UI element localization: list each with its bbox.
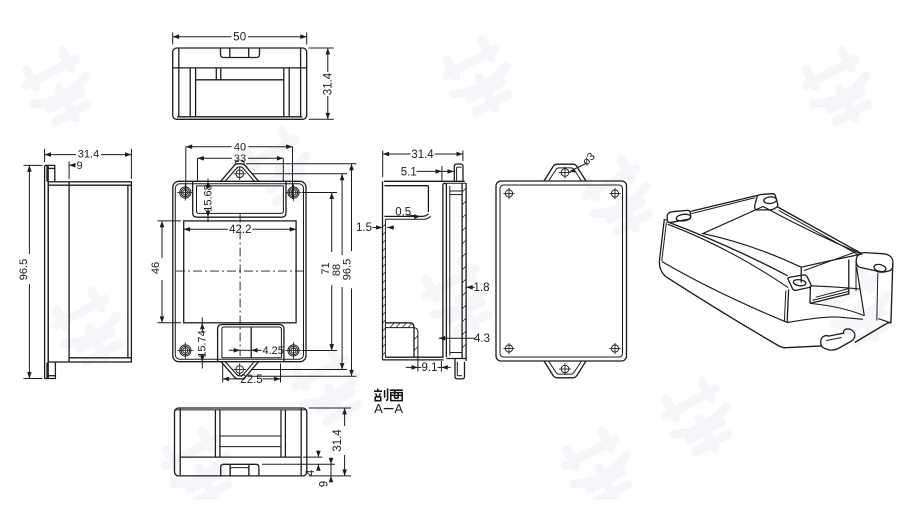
svg-text:15.68: 15.68 [202, 184, 214, 212]
svg-text:31.4: 31.4 [323, 72, 335, 95]
svg-text:42.2: 42.2 [229, 224, 251, 236]
svg-text:9: 9 [319, 481, 331, 487]
svg-text:4.25: 4.25 [263, 345, 284, 357]
svg-text:96.5: 96.5 [341, 259, 353, 280]
svg-text:1.8: 1.8 [474, 282, 490, 294]
svg-text:A: A [394, 401, 403, 416]
svg-text:50: 50 [233, 32, 246, 44]
svg-text:4.3: 4.3 [474, 333, 490, 345]
svg-text:1.5: 1.5 [356, 222, 372, 234]
svg-text:40: 40 [234, 142, 246, 154]
svg-text:4: 4 [305, 469, 317, 476]
svg-text:0.5: 0.5 [395, 206, 411, 218]
svg-text:96.5: 96.5 [18, 259, 30, 280]
svg-text:46: 46 [150, 262, 162, 274]
svg-text:31.4: 31.4 [332, 429, 344, 452]
svg-text:5.1: 5.1 [401, 166, 417, 178]
svg-text:22.5: 22.5 [240, 374, 262, 386]
svg-text:9: 9 [76, 160, 82, 172]
svg-text:15.74: 15.74 [197, 330, 209, 358]
svg-text:A: A [374, 401, 383, 416]
svg-text:9.1: 9.1 [422, 362, 438, 374]
svg-text:31.4: 31.4 [411, 149, 434, 161]
svg-text:31.4: 31.4 [78, 149, 99, 161]
svg-text:33: 33 [234, 153, 246, 165]
